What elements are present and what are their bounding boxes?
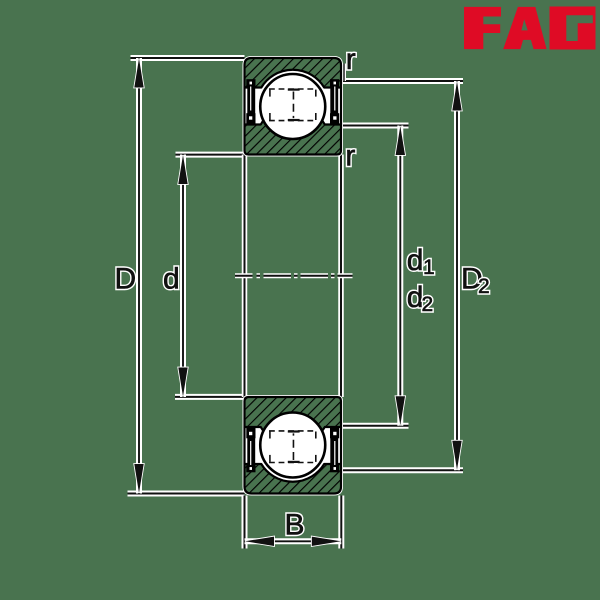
svg-text:d: d <box>407 244 424 277</box>
svg-text:2: 2 <box>478 275 490 298</box>
svg-text:d: d <box>163 262 180 295</box>
svg-text:r: r <box>345 140 355 173</box>
svg-text:D: D <box>115 262 137 295</box>
svg-text:B: B <box>285 509 305 542</box>
svg-text:r: r <box>346 43 356 76</box>
svg-text:2: 2 <box>422 293 434 316</box>
svg-text:1: 1 <box>423 256 435 279</box>
